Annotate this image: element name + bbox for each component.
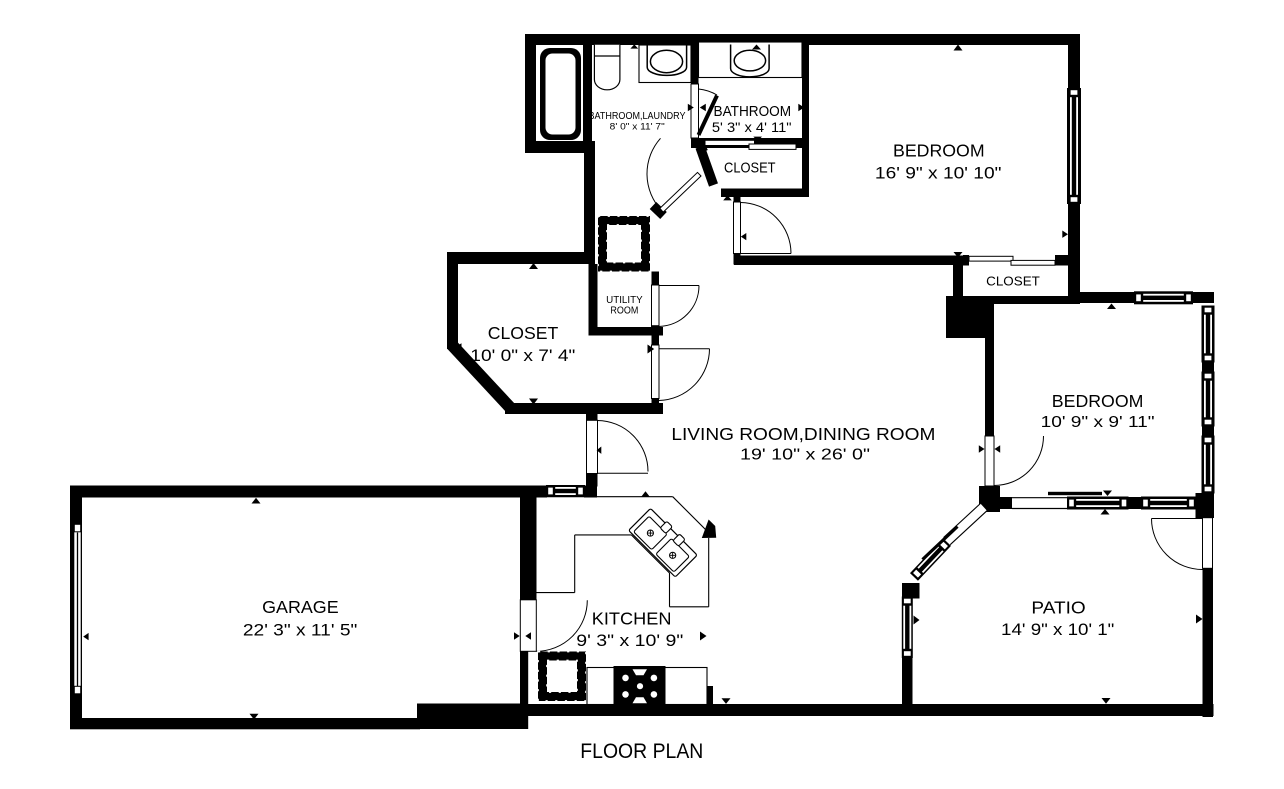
svg-text:GARAGE: GARAGE xyxy=(262,597,339,617)
svg-text:10' 9" x 9' 11": 10' 9" x 9' 11" xyxy=(1041,414,1155,431)
svg-text:8' 0" x 11' 7": 8' 0" x 11' 7" xyxy=(610,121,665,132)
svg-text:CLOSET: CLOSET xyxy=(488,323,559,343)
svg-text:PATIO: PATIO xyxy=(1031,598,1085,618)
svg-text:5' 3" x 4' 11": 5' 3" x 4' 11" xyxy=(712,119,792,135)
svg-text:16' 9" x 10' 10": 16' 9" x 10' 10" xyxy=(875,163,1002,182)
svg-text:BEDROOM: BEDROOM xyxy=(1052,391,1144,411)
svg-text:KITCHEN: KITCHEN xyxy=(592,609,672,629)
svg-text:FLOOR PLAN: FLOOR PLAN xyxy=(580,739,703,763)
svg-text:22' 3" x 11' 5": 22' 3" x 11' 5" xyxy=(243,620,358,639)
svg-text:14' 9" x 10' 1": 14' 9" x 10' 1" xyxy=(1001,620,1114,639)
svg-text:19' 10" x 26' 0": 19' 10" x 26' 0" xyxy=(740,447,870,464)
svg-text:LIVING ROOM,DINING ROOM: LIVING ROOM,DINING ROOM xyxy=(671,424,935,444)
svg-text:10' 0" x 7' 4": 10' 0" x 7' 4" xyxy=(470,346,575,365)
svg-text:9' 3" x 10' 9": 9' 3" x 10' 9" xyxy=(576,631,683,650)
svg-text:CLOSET: CLOSET xyxy=(986,274,1040,289)
svg-text:BEDROOM: BEDROOM xyxy=(893,141,985,161)
svg-text:ROOM: ROOM xyxy=(610,306,638,317)
svg-text:CLOSET: CLOSET xyxy=(724,160,776,177)
svg-text:BATHROOM: BATHROOM xyxy=(714,104,792,120)
